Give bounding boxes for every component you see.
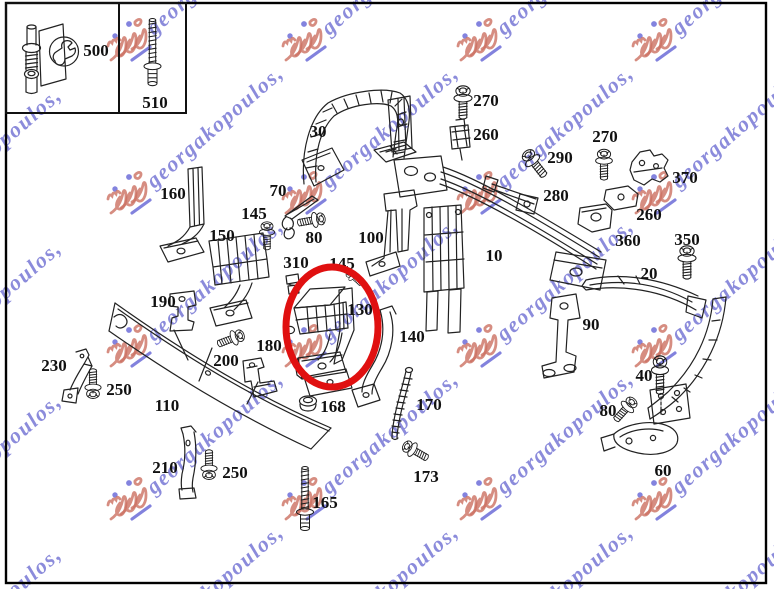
svg-text:190: 190 [150, 292, 176, 311]
svg-text:110: 110 [155, 396, 180, 415]
svg-text:145: 145 [241, 204, 267, 223]
svg-text:200: 200 [213, 351, 239, 370]
svg-text:20: 20 [641, 264, 658, 283]
svg-text:230: 230 [41, 356, 67, 375]
svg-text:150: 150 [209, 226, 235, 245]
svg-text:60: 60 [655, 461, 672, 480]
svg-text:160: 160 [160, 184, 186, 203]
svg-text:290: 290 [547, 148, 573, 167]
svg-text:500: 500 [83, 41, 109, 60]
svg-text:70: 70 [270, 181, 287, 200]
svg-text:270: 270 [592, 127, 618, 146]
svg-text:250: 250 [106, 380, 132, 399]
svg-text:140: 140 [399, 327, 425, 346]
svg-text:360: 360 [615, 231, 641, 250]
svg-text:170: 170 [416, 395, 442, 414]
svg-text:130: 130 [347, 300, 373, 319]
svg-text:370: 370 [672, 168, 698, 187]
svg-text:180: 180 [256, 336, 282, 355]
svg-text:30: 30 [310, 122, 327, 141]
svg-text:80: 80 [600, 401, 617, 420]
svg-text:270: 270 [473, 91, 499, 110]
svg-text:250: 250 [222, 463, 248, 482]
svg-text:100: 100 [358, 228, 384, 247]
svg-text:260: 260 [473, 125, 499, 144]
svg-text:168: 168 [320, 397, 346, 416]
svg-text:40: 40 [636, 366, 653, 385]
svg-text:173: 173 [413, 467, 439, 486]
svg-text:90: 90 [583, 315, 600, 334]
svg-text:510: 510 [142, 93, 168, 112]
svg-text:310: 310 [283, 253, 309, 272]
svg-text:10: 10 [486, 246, 503, 265]
svg-text:280: 280 [543, 186, 569, 205]
svg-text:210: 210 [152, 458, 178, 477]
svg-text:350: 350 [674, 230, 700, 249]
svg-text:80: 80 [306, 228, 323, 247]
svg-text:165: 165 [312, 493, 338, 512]
svg-text:260: 260 [636, 205, 662, 224]
